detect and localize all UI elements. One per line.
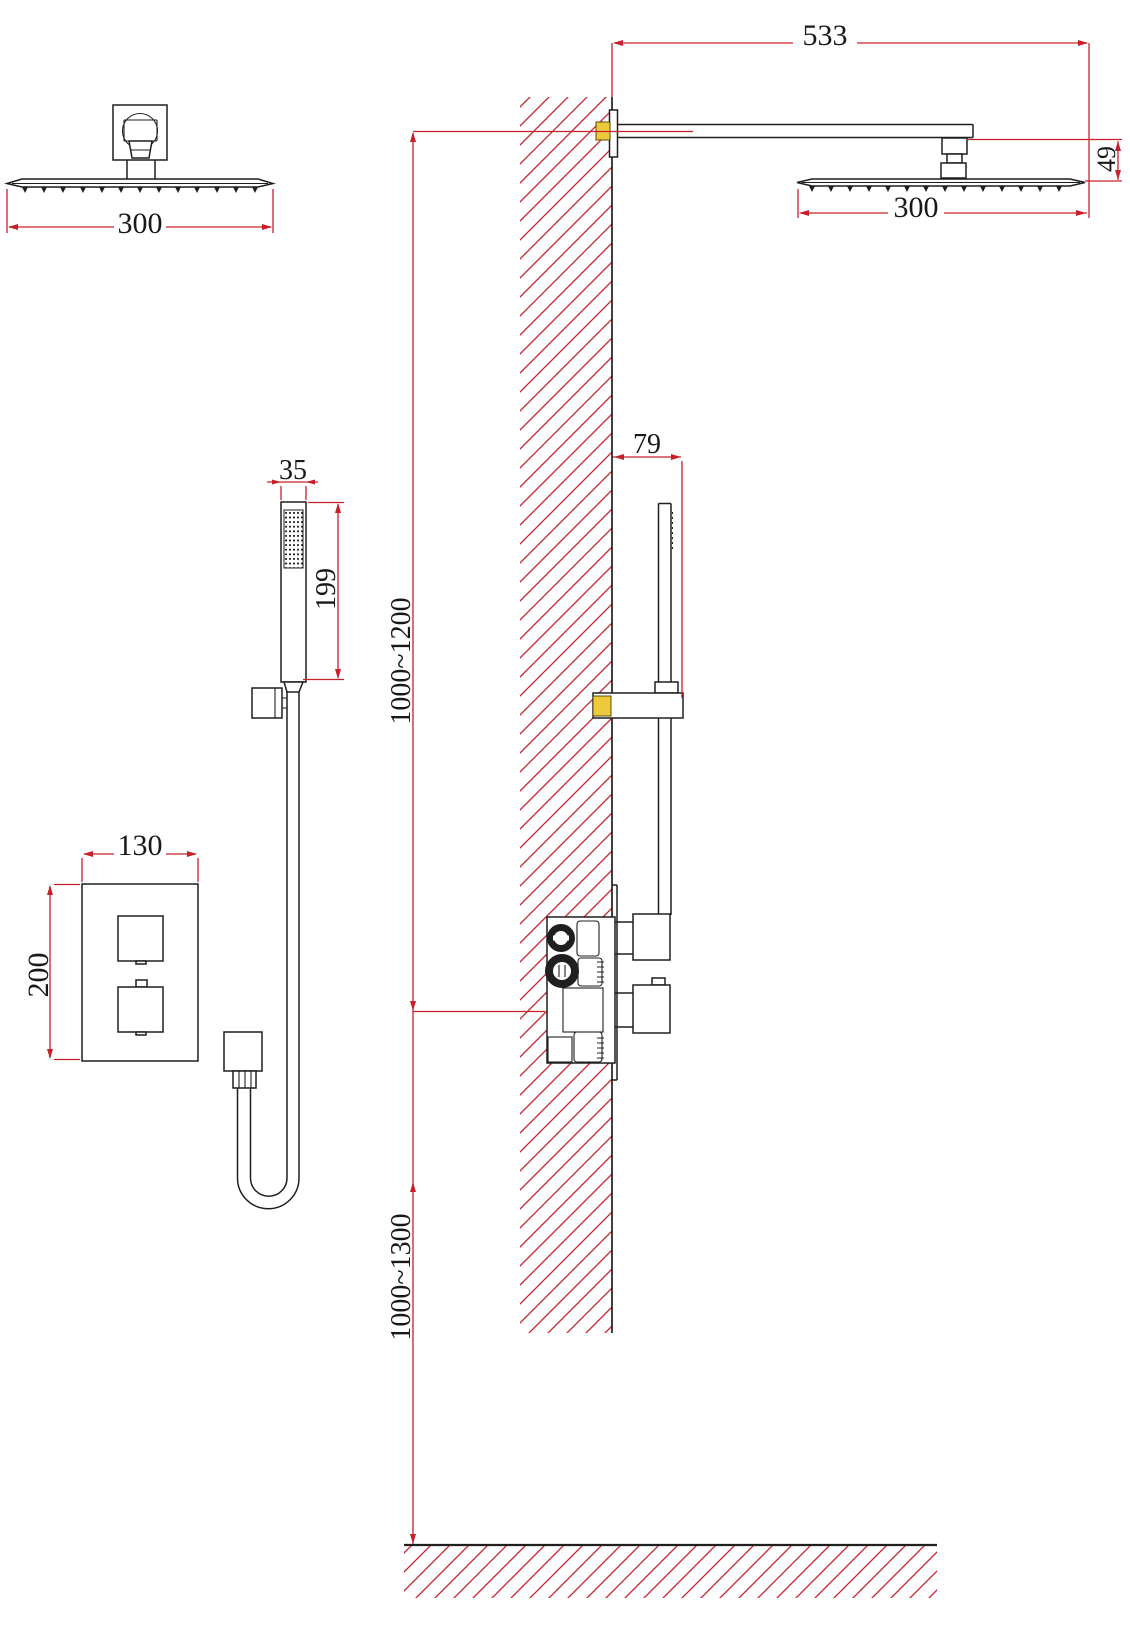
arrow-up bbox=[410, 1182, 416, 1192]
floor-section bbox=[404, 1545, 937, 1598]
arrow-right bbox=[1078, 40, 1088, 46]
knob-upper-nub bbox=[136, 961, 146, 964]
unused bbox=[287, 692, 324, 1196]
hose-inner bbox=[251, 692, 288, 1196]
rain-head-front-view bbox=[7, 105, 273, 193]
arrow-down bbox=[410, 1001, 416, 1011]
arrow-up bbox=[410, 132, 416, 142]
dim-533-lines bbox=[612, 43, 1089, 218]
arrow-right bbox=[262, 224, 272, 230]
joint-lower-side bbox=[941, 163, 966, 178]
arrow-down bbox=[410, 1534, 416, 1544]
wall-outlet-elbow bbox=[224, 1032, 262, 1071]
arrow-right bbox=[187, 851, 197, 857]
arrow-right bbox=[671, 454, 681, 460]
nozzles-front bbox=[22, 187, 258, 193]
valve-knob-lower bbox=[118, 987, 163, 1032]
hose-outer bbox=[238, 692, 300, 1209]
hand-shower-holder bbox=[252, 688, 282, 718]
knob-lower-side bbox=[633, 985, 670, 1033]
arrow-down bbox=[47, 1049, 53, 1059]
dim-lower-range-label: 1000~1300 bbox=[386, 1213, 417, 1340]
hand-shower-spray-face bbox=[284, 510, 303, 568]
dim-upper-range-label: 1000~1200 bbox=[386, 597, 417, 724]
knob-lower-tab bbox=[136, 980, 147, 987]
valve-front-view bbox=[82, 884, 262, 1088]
knob-lower-nub bbox=[136, 1032, 146, 1035]
wall-anchor-slider bbox=[593, 696, 611, 716]
valve-knob-upper bbox=[118, 916, 163, 961]
knob-tab-side bbox=[652, 978, 665, 985]
arrow-down bbox=[335, 669, 341, 679]
slider-collar bbox=[655, 682, 678, 693]
dim-199-label: 199 bbox=[311, 568, 342, 610]
joint-mid-side bbox=[947, 154, 962, 163]
arm-pipe-front bbox=[127, 160, 155, 179]
hose-drop-side bbox=[659, 718, 672, 915]
dim-130-label: 130 bbox=[118, 829, 163, 862]
arrow-left bbox=[613, 40, 623, 46]
wall-flange-side bbox=[610, 110, 618, 157]
hand-shower-neck bbox=[284, 682, 303, 692]
pipe-port-upper-slot bbox=[553, 936, 569, 941]
joint-upper-side bbox=[942, 138, 967, 154]
dim-533-label: 533 bbox=[803, 19, 848, 52]
knob-upper-side bbox=[633, 914, 670, 960]
arrow-left bbox=[614, 454, 624, 460]
pipe-port-lower-slot bbox=[556, 965, 568, 977]
dim-35-label: 35 bbox=[279, 455, 307, 486]
hand-shower-side-rod bbox=[659, 504, 672, 683]
drawing-canvas: 300 533 300 35 79 130 200 199 49 1000~12… bbox=[0, 0, 1130, 1637]
dim-200-label: 200 bbox=[22, 953, 55, 998]
dim-300-front-label: 300 bbox=[118, 207, 163, 240]
arrow-up bbox=[335, 503, 341, 513]
arrow-left bbox=[799, 210, 809, 216]
rain-head-side-view bbox=[596, 110, 1085, 192]
arrow-left bbox=[83, 851, 93, 857]
dim-49-label: 49 bbox=[1092, 146, 1121, 172]
floor-hatch bbox=[404, 1546, 937, 1598]
arrow-right bbox=[1076, 210, 1086, 216]
dim-300-side-label: 300 bbox=[894, 191, 939, 224]
arrow-up bbox=[47, 885, 53, 895]
dim-79-label: 79 bbox=[633, 429, 661, 460]
shower-installation-drawing: 300 533 300 35 79 130 200 199 49 1000~12… bbox=[0, 0, 1130, 1637]
arrow-left bbox=[8, 224, 18, 230]
arrow-left bbox=[306, 480, 315, 485]
